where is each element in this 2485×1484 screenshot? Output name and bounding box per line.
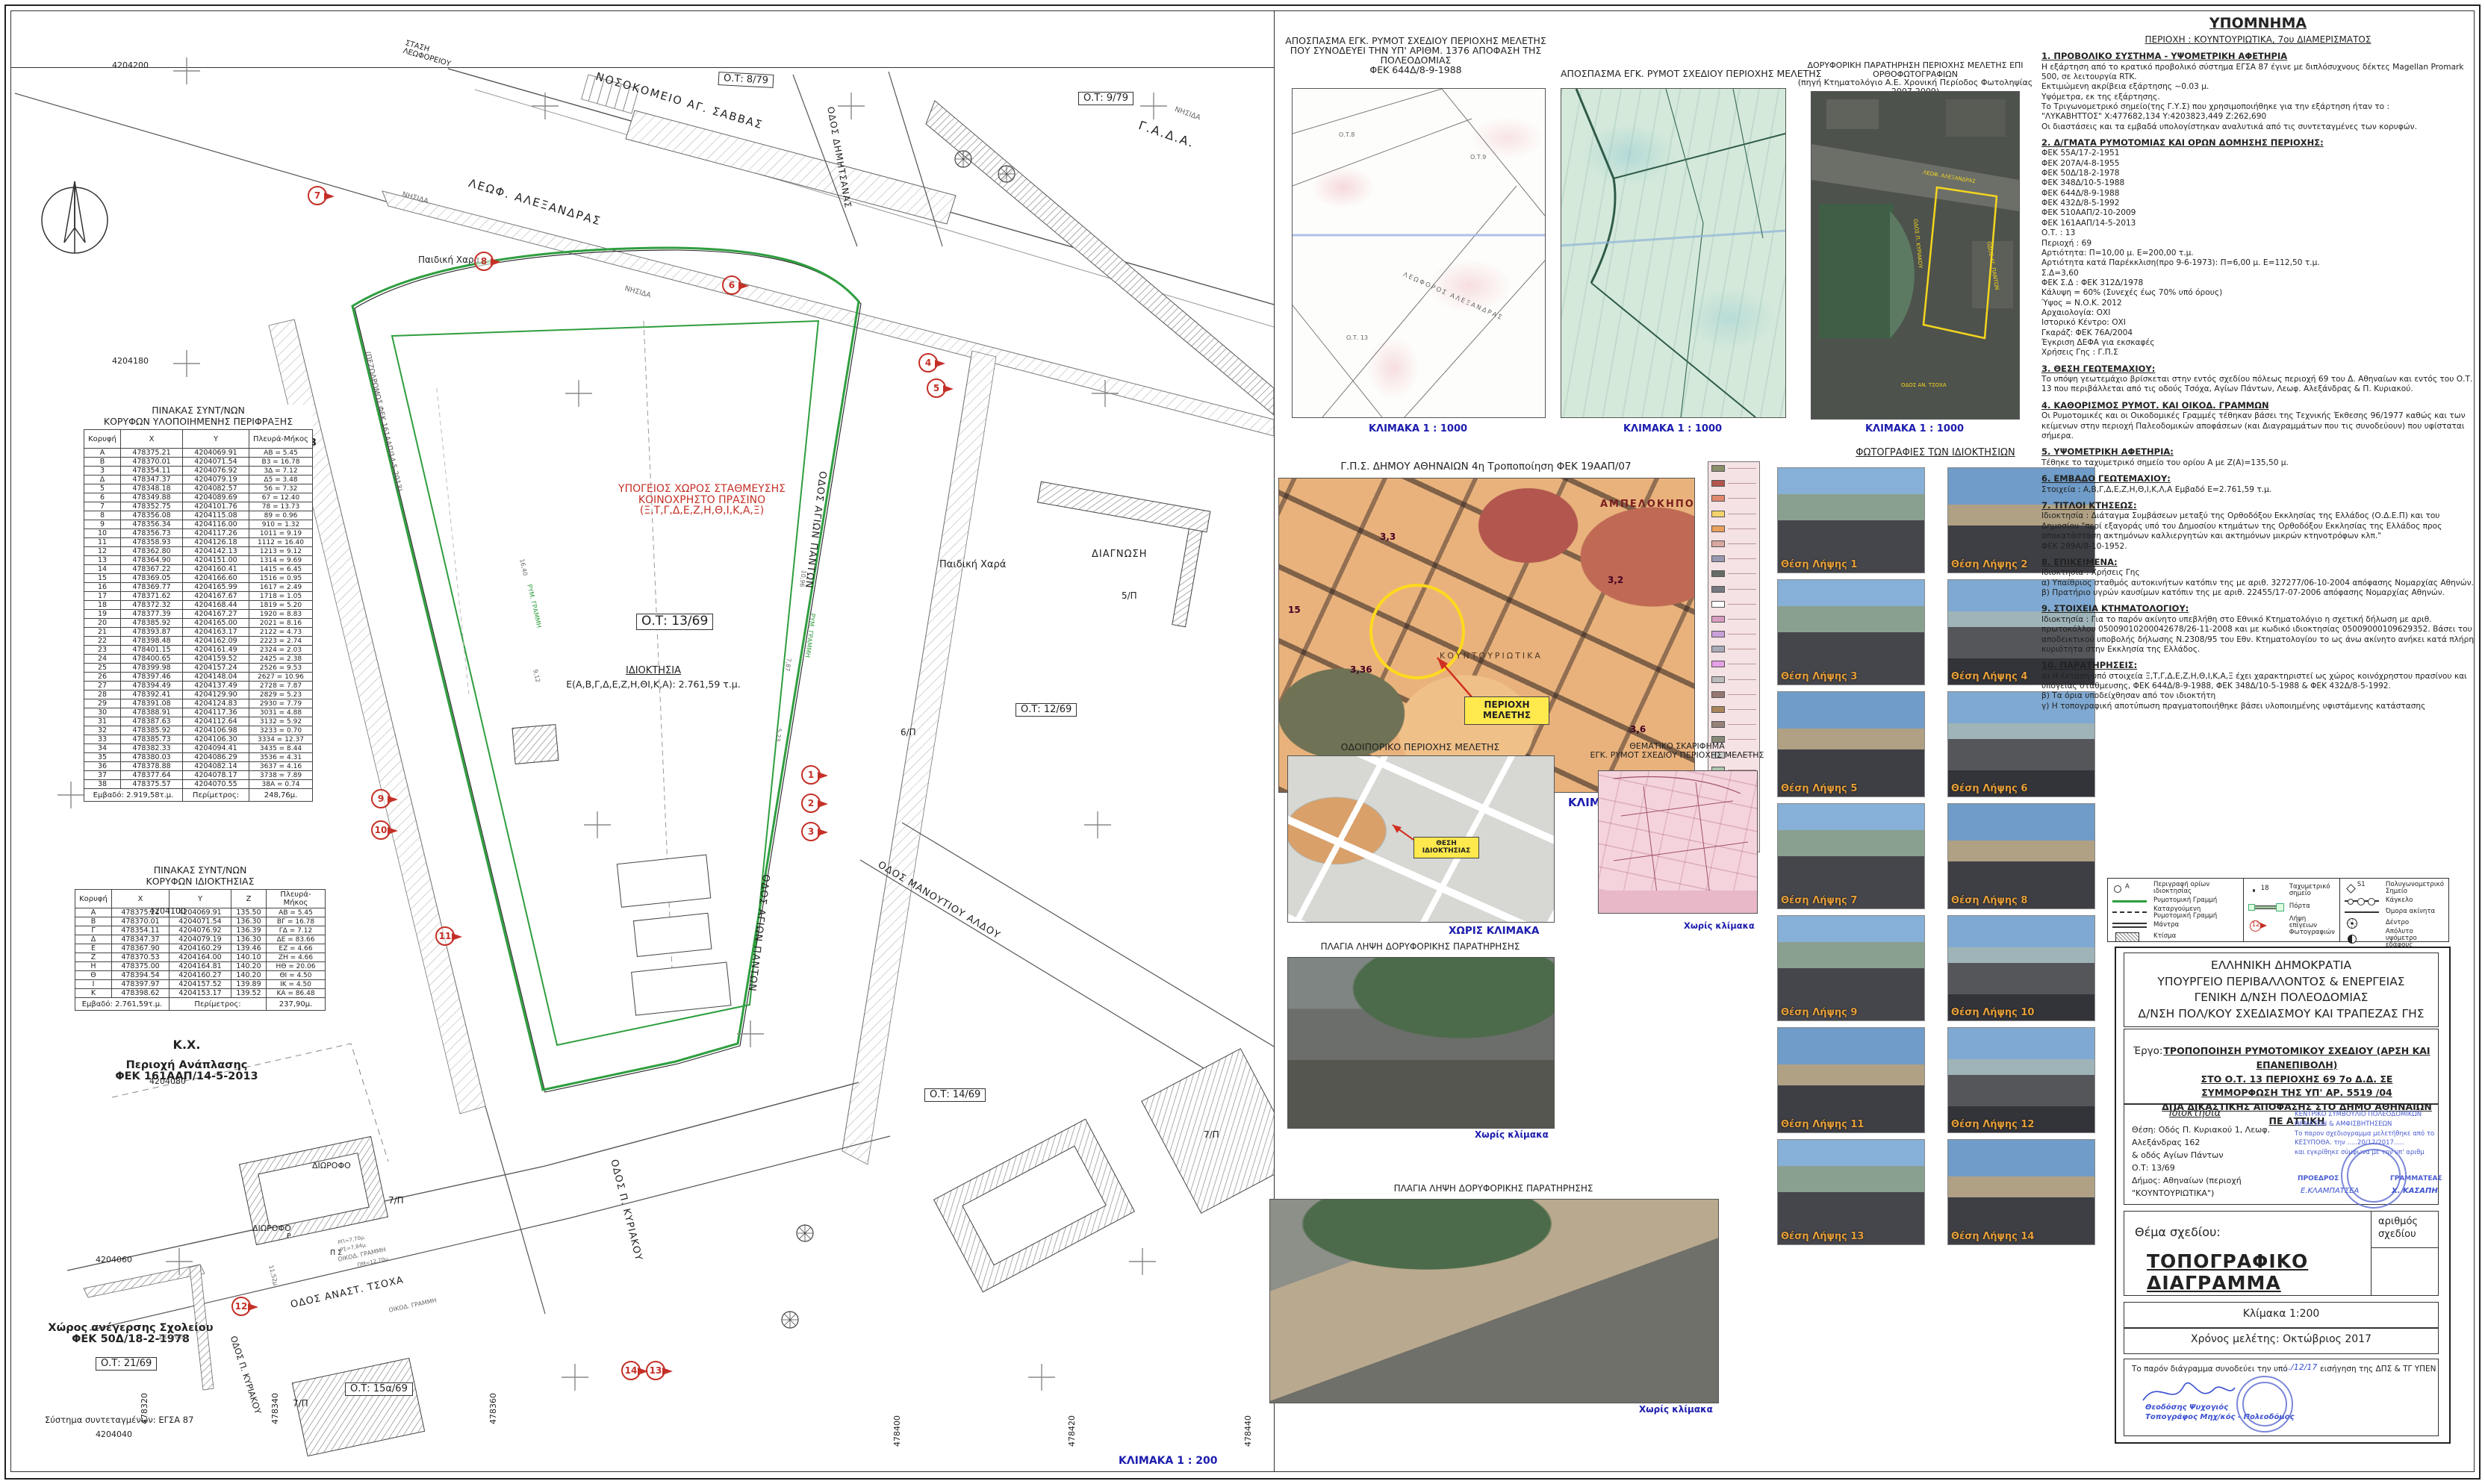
photo-caption: Θέση Λήψης 5 xyxy=(1781,783,1857,794)
excerpt2-title: ΑΠΟΣΠΑΣΜΑ ΕΓΚ. ΡΥΜΟΤ ΣΧΕΔΙΟΥ ΠΕΡΙΟΧΗΣ ΜΕ… xyxy=(1561,69,1785,78)
block-ot14-label: Ο.Τ: 14/69 xyxy=(924,1088,986,1102)
gps-study-area-tag: ΠΕΡΙΟΧΗ ΜΕΛΕΤΗΣ xyxy=(1464,696,1549,725)
table-row: Α478375.214204069.91135.50ΑΒ = 5.45 xyxy=(75,908,326,917)
floors-6p-label: 6/Π xyxy=(901,728,916,738)
property-photo: Θέση Λήψης 8 xyxy=(1947,803,2095,909)
playground-label-top: Παιδική Χαρά xyxy=(418,255,480,265)
table-row: 9478356.344204116.00910 = 1.32 xyxy=(84,520,313,529)
symbol-icon xyxy=(2345,933,2382,944)
excerpt1-title: ΑΠΟΣΠΑΣΜΑ ΕΓΚ. ΡΥΜΟΤ ΣΧΕΔΙΟΥ ΠΕΡΙΟΧΗΣ ΜΕ… xyxy=(1283,36,1549,75)
symbol-icon xyxy=(2248,901,2286,912)
legend-section: 9. ΣΤΟΙΧΕΙΑ ΚΤΗΜΑΤΟΛΟΓΙΟΥ: Ιδιοκτησία : … xyxy=(2041,603,2475,655)
table-row: 23478401.154204161.492324 = 2.03 xyxy=(84,646,313,655)
plagia2-caption: Χωρίς κλίμακα xyxy=(1639,1405,1713,1415)
symbol-row: Μάντρα xyxy=(2112,920,2239,931)
table-row: 7478352.754204101.7678 = 13.73 xyxy=(84,502,313,511)
study-time-box: Χρόνος μελέτης: Οκτώβριος 2017 xyxy=(2124,1327,2439,1354)
plan-scale-label: ΚΛΙΜΑΚΑ 1 : 200 xyxy=(1119,1456,1218,1467)
block-ot8-label: Ο.Τ: 8/79 xyxy=(718,72,774,87)
symbol-row: AΠεριγραφή ορίων ιδιοκτησίας xyxy=(2112,882,2239,895)
gps-legend-row xyxy=(1711,526,1756,531)
grid-x-478360: 478360 xyxy=(489,1393,498,1424)
gps-area-label: ΑΜΠΕΛΟΚΗΠΟΙ xyxy=(1600,499,1695,510)
table-row: 8478356.084204115.0889 = 0.96 xyxy=(84,511,313,520)
symbol-icon xyxy=(2112,908,2150,919)
sxoleia-label: ΣΧΟΛΕΙΑ xyxy=(158,1335,188,1341)
diorofo-label-2: ΔΙΩΡΟΦΟ xyxy=(252,1224,291,1233)
plagia1-caption: Χωρίς κλίμακα xyxy=(1475,1130,1549,1140)
photo-caption: Θέση Λήψης 14 xyxy=(1951,1231,2034,1242)
table-row: 34478382.334204094.413435 = 8.44 xyxy=(84,744,313,753)
playground-label-right: Παιδική Χαρά xyxy=(939,560,1006,570)
proedros-label: ΠΡΟΕΔΡΟΣ xyxy=(2298,1176,2339,1182)
property-photo: Θέση Λήψης 1 xyxy=(1777,467,1925,573)
excerpt2-caption: ΚΛΙΜΑΚΑ 1 : 1000 xyxy=(1561,424,1785,434)
grid-y-4204200: 4204200 xyxy=(112,61,149,70)
legend-section: 6. ΕΜΒΑΔΟ ΓΕΩΤΕΜΑΧΙΟΥ: Στοιχεία : Α,Β,Γ,… xyxy=(2041,473,2475,495)
symbol-row: 18Ταχυμετρικό σημείο xyxy=(2248,884,2335,897)
gps-zone-336: 3,36 xyxy=(1350,665,1372,675)
block-ot13-label: Ο.Τ: 13/69 xyxy=(636,614,713,630)
owner-label: Ιδιοκτησία xyxy=(2169,1109,2221,1119)
scale-value: Κλίμακα 1:200 xyxy=(2124,1308,2438,1320)
table-row: 15478369.054204166.601516 = 0.95 xyxy=(84,574,313,583)
photo-caption: Θέση Λήψης 1 xyxy=(1781,559,1857,570)
gps-legend-row xyxy=(1711,646,1756,652)
legend-title: ΥΠΟΜΝΗΜΑ xyxy=(2041,15,2475,33)
gps-legend-row xyxy=(1711,722,1756,727)
table-row: 19478377.394204167.271920 = 8.83 xyxy=(84,610,313,619)
odoiporiko-map: ΘΕΣΗ ΙΔΙΟΚΤΗΣΙΑΣ xyxy=(1287,755,1555,923)
grid-y-4204100: 4204100 xyxy=(149,907,186,916)
property-photo: Θέση Λήψης 7 xyxy=(1777,803,1925,909)
table-row: 35478380.034204086.293536 = 4.31 xyxy=(84,753,313,762)
symbol-icon xyxy=(2112,931,2150,942)
table-row: 30478388.914204117.363031 = 4.88 xyxy=(84,708,313,717)
table-row: 27478394.494204137.492728 = 7.87 xyxy=(84,682,313,690)
thematiko-map xyxy=(1598,770,1758,914)
legend-section: 4. ΚΑΘΟΡΙΣΜΟΣ ΡΥΜΟΤ. ΚΑΙ ΟΙΚΟΔ. ΓΡΑΜΜΩΝ … xyxy=(2041,400,2475,442)
kx-label-bottom: Κ.Χ. xyxy=(131,1039,243,1052)
block-ot9-label: Ο.Τ: 9/79 xyxy=(1078,92,1133,105)
gps-legend-row xyxy=(1711,617,1756,622)
table-row: 12478362.804204142.131213 = 9.12 xyxy=(84,547,313,556)
table-row: Ζ478370.534204164.00140.10ΖΗ = 4.66 xyxy=(75,953,326,962)
north-arrow xyxy=(42,181,108,253)
diorofo-label-1: ΔΙΩΡΟΦΟ xyxy=(312,1162,351,1170)
gps-zone-33: 3,3 xyxy=(1380,532,1396,542)
excerpt1-map: Ο.Τ.8 Ο.Τ.9 Ο.Τ. 13 ΛΕΩΦΟΡΟΣ ΑΛΕΞΑΝΔΡΑΣ xyxy=(1292,88,1546,418)
dim-s5: 5,23 xyxy=(774,728,782,742)
symbol-row: 12Λήψη επίγειων Φωτογραφιών xyxy=(2248,916,2335,936)
legend-section: 5. ΥΨΟΜΕΤΡΙΚΗ ΑΦΕΤΗΡΙΑ: Τέθηκε το ταχυμε… xyxy=(2041,446,2475,468)
scale-box: Κλίμακα 1:200 xyxy=(2124,1302,2439,1329)
legend-section: 1. ΠΡΟΒΟΛΙΚΟ ΣΥΣΤΗΜΑ - ΥΨΟΜΕΤΡΙΚΗ ΑΦΕΤΗΡ… xyxy=(2041,51,2475,132)
table-row: 28478392.414204129.902829 = 5.23 xyxy=(84,690,313,699)
gps-zone-32: 3,2 xyxy=(1608,576,1623,585)
grid-y-4204060: 4204060 xyxy=(96,1256,132,1265)
property-photo: Θέση Λήψης 13 xyxy=(1777,1139,1925,1245)
table-row: 24478400.654204159.522425 = 2.38 xyxy=(84,655,313,664)
symbol-icon: A xyxy=(2112,883,2150,894)
legend-section: 7. ΤΙΤΛΟΙ ΚΤΗΣΕΩΣ: Ιδιοκτησία : Διάταγμα… xyxy=(2041,500,2475,552)
plagia1-photo xyxy=(1287,957,1555,1129)
gps-legend-row xyxy=(1711,602,1756,607)
ortho-map: ΛΕΩΦ. ΑΛΕΞΑΝΔΡΑΣ ΟΔΟΣ Π. ΚΥΡΙΑΚΟΥ ΟΔΟΣ Α… xyxy=(1811,91,2020,420)
floors-5p-label: 5/Π xyxy=(1122,591,1137,601)
symbol-row: Όμορα ακίνητα xyxy=(2345,906,2444,917)
gps-legend-row xyxy=(1711,661,1756,667)
legend-subtitle: ΠΕΡΙΟΧΗ : ΚΟΥΝΤΟΥΡΙΩΤΙΚΑ, 7ου ΔΙΑΜΕΡΙΣΜΑ… xyxy=(2041,34,2475,46)
property-table-title: ΠΙΝΑΚΑΣ ΣΥΝΤ/ΝΩΝ ΚΟΡΥΦΩΝ ΙΔΙΟΚΤΗΣΙΑΣ xyxy=(75,864,326,887)
gps-title: Γ.Π.Σ. ΔΗΜΟΥ ΑΘΗΝΑΙΩΝ 4η Τροποποίηση ΦΕΚ… xyxy=(1278,461,1694,472)
legend-section: 2. Δ/ΓΜΑΤΑ ΡΥΜΟΤΟΜΙΑΣ ΚΑΙ ΟΡΩΝ ΔΟΜΗΣΗΣ Π… xyxy=(2041,137,2475,358)
excerpt2-map xyxy=(1561,88,1786,418)
table-row: Δ478347.374204079.19Δ5 = 3.48 xyxy=(84,476,313,484)
owner-box: Ιδιοκτησία Θέση: Οδός Π. Κυριακού 1, Λεω… xyxy=(2124,1103,2439,1205)
gps-legend-row xyxy=(1711,571,1756,576)
photo-caption: Θέση Λήψης 6 xyxy=(1951,783,2027,794)
table-row: Γ478354.114204076.92136.39ΓΔ = 7.12 xyxy=(75,926,326,935)
photo-caption: Θέση Λήψης 2 xyxy=(1951,559,2027,570)
table-row: 5478348.184204082.5756 = 7.32 xyxy=(84,484,313,493)
dim-s3: 10,96 xyxy=(798,570,806,587)
gps-legend-row xyxy=(1711,496,1756,501)
table-row: Κ478398.624204153.17139.52ΚΑ = 86.48 xyxy=(75,989,326,998)
anaplasi-label-bottom: Περιοχή Ανάπλασης ΦΕΚ 161ΑΑΠ/14-5-2013 xyxy=(86,1060,287,1082)
property-photo: Θέση Λήψης 10 xyxy=(1947,915,2095,1021)
coord-system-note: Σύστημα συντεταγμένων: ΕΓΣΑ 87 xyxy=(45,1415,193,1424)
photo-caption: Θέση Λήψης 7 xyxy=(1781,895,1857,906)
table-row: 10478356.734204117.261011 = 9.19 xyxy=(84,529,313,538)
table-row: Θ478394.544204160.27140.20ΘΙ = 4.50 xyxy=(75,971,326,980)
symbol-row: Ρυμοτομική Γραμμή xyxy=(2112,895,2239,906)
grid-x-478400: 478400 xyxy=(893,1415,902,1447)
gps-legend-row xyxy=(1711,677,1756,682)
block-ot12-label: Ο.Τ: 12/69 xyxy=(1016,703,1077,717)
agency-name: ΕΛΛΗΝΙΚΗ ΔΗΜΟΚΡΑΤΙΑ ΥΠΟΥΡΓΕΙΟ ΠΕΡΙΒΑΛΛΟΝ… xyxy=(2124,958,2438,1023)
photo-caption: Θέση Λήψης 8 xyxy=(1951,895,2027,906)
table-row: 38478375.574204070.5538A = 0.74 xyxy=(84,780,313,789)
grid-y-4204040: 4204040 xyxy=(96,1430,132,1439)
table-row: Ε478367.904204160.29139.46ΕΖ = 4.66 xyxy=(75,944,326,953)
table-row: 13478364.904204151.001314 = 9.69 xyxy=(84,556,313,565)
table-row: 33478385.734204106.303334 = 12.37 xyxy=(84,735,313,744)
symbol-icon: 18 xyxy=(2248,885,2286,896)
property-photo: Θέση Λήψης 14 xyxy=(1947,1139,2095,1245)
table-row: A478375.214204069.91AB = 5.45 xyxy=(84,449,313,458)
property-photo: Θέση Λήψης 3 xyxy=(1777,579,1925,685)
excerpt1-ot8: Ο.Τ.8 xyxy=(1339,132,1355,138)
table-row: Ι478397.974204157.52139.89ΙΚ = 4.50 xyxy=(75,980,326,989)
floors-7p-label-1: 7/Π xyxy=(388,1196,404,1206)
gps-legend-row xyxy=(1711,632,1756,637)
official-stamp-inner xyxy=(2347,1149,2401,1203)
symbol-row: Δέντρο xyxy=(2345,917,2444,929)
symbol-row: Κάγκελο xyxy=(2345,895,2444,906)
legend-panel: ΥΠΟΜΝΗΜΑ ΠΕΡΙΟΧΗ : ΚΟΥΝΤΟΥΡΙΩΤΙΚΑ, 7ου Δ… xyxy=(2041,15,2475,711)
legend-section: 8. ΕΠΙΚΕΙΜΕΝΑ: Ιδιοκτησία : Χρήσεις Γης … xyxy=(2041,557,2475,599)
table-row: 21478393.874204163.172122 = 4.73 xyxy=(84,628,313,637)
table-row: 11478358.934204126.181112 = 16.40 xyxy=(84,538,313,547)
drawing-number-label: αριθμός σχεδίου xyxy=(2378,1216,2418,1241)
project-box: Έργο: ΤΡΟΠΟΠΟΙΗΣΗ ΡΥΜΟΤΟΜΙΚΟΥ ΣΧΕΔΙΟΥ (Α… xyxy=(2124,1029,2439,1105)
subject-label: Θέμα σχεδίου: xyxy=(2135,1226,2221,1239)
legend-section: 10. ΠΑΡΑΤΗΡΗΣΕΙΣ: α) Η έκταση υπό στοιχε… xyxy=(2041,660,2475,711)
symbol-icon xyxy=(2345,906,2382,917)
table-row: 17478371.624204167.671718 = 1.05 xyxy=(84,592,313,601)
table-row: 26478397.464204148.042627 = 10.96 xyxy=(84,673,313,682)
property-photo: Θέση Λήψης 9 xyxy=(1777,915,1925,1021)
table-row: Η478375.004204164.81140.20ΗΘ = 20.06 xyxy=(75,962,326,971)
note-pre: Το παρόν διάγραμμα συνοδεύει την υπό xyxy=(2132,1365,2288,1374)
symbol-icon xyxy=(2112,920,2150,931)
gps-legend-row xyxy=(1711,707,1756,712)
table-row: 37478377.644204078.173738 = 7.89 xyxy=(84,771,313,780)
table-row: 36478378.884204082.143637 = 4.16 xyxy=(84,762,313,771)
symbol-row: Κτίσμα xyxy=(2112,931,2239,942)
table-row: 6478349.884204089.6967 = 12.40 xyxy=(84,493,313,502)
photo-caption: Θέση Λήψης 11 xyxy=(1781,1119,1864,1130)
engineer-signature-scribble xyxy=(2139,1374,2236,1408)
symbol-row: Πόρτα xyxy=(2248,901,2335,912)
plagia2-photo xyxy=(1269,1199,1719,1403)
gps-legend-row xyxy=(1711,587,1756,592)
property-vertices-table: ΠΙΝΑΚΑΣ ΣΥΝΤ/ΝΩΝ ΚΟΡΥΦΩΝ ΙΔΙΟΚΤΗΣΙΑΣ Κορ… xyxy=(75,864,326,1011)
table-row: 32478385.924204106.983233 = 0.70 xyxy=(84,726,313,735)
excerpt1-ot9: Ο.Τ.9 xyxy=(1470,155,1486,160)
photo-caption: Θέση Λήψης 12 xyxy=(1951,1119,2034,1130)
grid-y-4204180: 4204180 xyxy=(112,357,149,366)
symbol-row: Καταργούμενη Ρυμοτομική Γραμμή xyxy=(2112,906,2239,920)
project-label: Έργο: xyxy=(2133,1046,2162,1056)
note-handwritten-date: …/12/17 xyxy=(2283,1363,2317,1372)
excerpt1-ot13: Ο.Τ. 13 xyxy=(1346,335,1368,341)
property-photo: Θέση Λήψης 11 xyxy=(1777,1027,1925,1133)
floors-7p-label-3: 7/Π xyxy=(1204,1130,1219,1140)
grid-x-478420: 478420 xyxy=(1068,1415,1077,1447)
dim-s4: 7,87 xyxy=(784,658,791,672)
odoiporiko-caption: ΧΩΡΙΣ ΚΛΙΜΑΚΑ xyxy=(1449,926,1539,936)
table-row: 18478372.324204168.441819 = 5.20 xyxy=(84,601,313,610)
ortho-caption: ΚΛΙΜΑΚΑ 1 : 1000 xyxy=(1811,424,2018,434)
gps-legend-row xyxy=(1711,481,1756,486)
legend-section: 3. ΘΕΣΗ ΓΕΩΤΕΜΑΧΙΟΥ: Το υπόψη γεωτεμάχιο… xyxy=(2041,364,2475,395)
gps-kountouriotika-label: ΚΟΥΝΤΟΥΡΙΩΤΙΚΑ xyxy=(1440,652,1543,661)
symbol-icon xyxy=(2112,895,2150,906)
table-row: 29478391.084204124.832930 = 7.79 xyxy=(84,699,313,708)
excerpt1-caption: ΚΛΙΜΑΚΑ 1 : 1000 xyxy=(1292,424,1544,434)
drawing-title: ΤΟΠΟΓΡΑΦΙΚΟ ΔΙΑΓΡΑΜΜΑ xyxy=(2147,1250,2438,1294)
grid-x-478440: 478440 xyxy=(1244,1415,1253,1447)
table-row: 16478369.774204165.991617 = 2.49 xyxy=(84,583,313,592)
table-row: B478370.014204071.54B3 = 16.78 xyxy=(84,458,313,467)
fence-vertices-table: ΠΙΝΑΚΑΣ ΣΥΝΤ/ΝΩΝ ΚΟΡΥΦΩΝ ΥΛΟΠΟΙΗΜΕΝΗΣ ΠΕ… xyxy=(84,405,313,802)
table-row: 25478399.984204157.242526 = 9.53 xyxy=(84,664,313,673)
fence-table-title: ΠΙΝΑΚΑΣ ΣΥΝΤ/ΝΩΝ ΚΟΡΥΦΩΝ ΥΛΟΠΟΙΗΜΕΝΗΣ ΠΕ… xyxy=(84,405,313,427)
property-area-value: Ε(Α,Β,Γ,Δ,Ε,Ζ,Η,ΘΙ,Κ,Α): 2.761,59 τ.μ. xyxy=(545,679,762,689)
property-photo: Θέση Λήψης 12 xyxy=(1947,1027,2095,1133)
photo-caption: Θέση Λήψης 9 xyxy=(1781,1007,1857,1018)
gps-zone-15: 15 xyxy=(1288,605,1301,615)
subject-box: Θέμα σχεδίου: ΤΟΠΟΓΡΑΦΙΚΟ ΔΙΑΓΡΑΜΜΑ αριθ… xyxy=(2124,1211,2439,1296)
symbol-row: S1Πολυγωνομετρικό Σημείο xyxy=(2345,882,2444,895)
owner-details: Θέση: Οδός Π. Κυριακού 1, Λεωφ. Αλεξάνδρ… xyxy=(2132,1123,2292,1200)
gps-zone-36: 3,6 xyxy=(1630,725,1646,735)
grid-x-478340: 478340 xyxy=(271,1393,280,1424)
vertex-rho: Ρ xyxy=(287,1233,291,1241)
property-photo: Θέση Λήψης 5 xyxy=(1777,691,1925,797)
table-footer-row: Εμβαδό: 2.761,59τ.μ. Περίμετρος: 237,90μ… xyxy=(75,998,326,1011)
block-ot15a-label: Ο.Τ: 15α/69 xyxy=(345,1382,413,1396)
symbols-legend: AΠεριγραφή ορίων ιδιοκτησίαςΡυμοτομική Γ… xyxy=(2107,878,2449,942)
grid-y-4204080: 4204080 xyxy=(149,1077,186,1086)
note-post: εισήγηση της ΔΠΣ & ΤΓ ΥΠΕΝ xyxy=(2320,1365,2436,1374)
symbol-icon: S1 xyxy=(2345,883,2382,894)
table-row: 14478367.224204160.411415 = 6.45 xyxy=(84,565,313,574)
table-row: 3478354.114204076.923Δ = 7.12 xyxy=(84,467,313,476)
thematiko-title: ΘΕΜΑΤΙΚΟ ΣΚΑΡΙΦΗΜΑ ΕΓΚ. ΡΥΜΟΤ ΣΧΕΔΙΟΥ ΠΕ… xyxy=(1589,742,1765,759)
photo-caption: Θέση Λήψης 4 xyxy=(1951,671,2027,682)
table-row: 20478385.924204165.002021 = 8.16 xyxy=(84,619,313,628)
photo-caption: Θέση Λήψης 13 xyxy=(1781,1231,1864,1242)
ortho-street-4: ΟΔΟΣ ΑΝ. ΤΣΟΧΑ xyxy=(1901,383,1947,388)
plagia2-title: ΠΛΑΓΙΑ ΛΗΨΗ ΔΟΡΥΦΟΡΙΚΗΣ ΠΑΡΑΤΗΡΗΣΗΣ xyxy=(1269,1184,1717,1194)
symbol-icon: 12 xyxy=(2248,920,2286,932)
gps-legend-row xyxy=(1711,511,1756,517)
table-header-row: Κορυφή X Y Πλευρά-Μήκος xyxy=(84,430,313,449)
agency-box: ΕΛΛΗΝΙΚΗ ΔΗΜΟΚΡΑΤΙΑ ΥΠΟΥΡΓΕΙΟ ΠΕΡΙΒΑΛΛΟΝ… xyxy=(2124,953,2439,1027)
study-time-value: Χρόνος μελέτης: Οκτώβριος 2017 xyxy=(2124,1333,2438,1345)
table-header-row: Κορυφή X Y Z Πλευρά-Μήκος xyxy=(75,890,326,908)
table-row: Β478370.014204071.54136.30ΒΓ = 16.78 xyxy=(75,917,326,926)
property-title: ΙΔΙΟΚΤΗΣΙΑ xyxy=(597,666,709,676)
note-box: Το παρόν διάγραμμα συνοδεύει την υπό …/1… xyxy=(2124,1359,2439,1436)
diagnosi-label: ΔΙΑΓΝΩΣΗ xyxy=(1092,549,1148,560)
gps-legend-row xyxy=(1711,541,1756,546)
table-row: 22478398.484204162.092223 = 2.74 xyxy=(84,637,313,646)
engineer-stamp-inner xyxy=(2242,1382,2287,1427)
school-site-label: Χώρος ανέγερσης Σχολείου ΦΕΚ 50Δ/18-2-19… xyxy=(45,1323,217,1345)
table-row: Δ478347.374204079.19136.30ΔΕ = 83.66 xyxy=(75,935,326,944)
table-row: 31478387.634204112.643132 = 5.92 xyxy=(84,717,313,726)
thematiko-caption: Χωρίς κλίμακα xyxy=(1684,921,1755,930)
gps-legend-row xyxy=(1711,692,1756,697)
floors-7p-label-2: 7/Π xyxy=(293,1399,308,1409)
odoiporiko-title: ΟΔΟΙΠΟΡΙΚΟ ΠΕΡΙΟΧΗΣ ΜΕΛΕΤΗΣ xyxy=(1287,742,1553,752)
gps-legend-row xyxy=(1711,466,1756,471)
gps-legend-row xyxy=(1711,556,1756,561)
symbol-icon xyxy=(2345,917,2382,929)
block-ot21-label: Ο.Τ: 21/69 xyxy=(96,1357,157,1371)
symbol-icon xyxy=(2345,895,2382,906)
photo-caption: Θέση Λήψης 10 xyxy=(1951,1007,2034,1018)
plagia1-title: ΠΛΑΓΙΑ ΛΗΨΗ ΔΟΡΥΦΟΡΙΚΗΣ ΠΑΡΑΤΗΡΗΣΗΣ xyxy=(1287,942,1553,952)
table-footer-row: Εμβαδό: 2.919,58τ.μ. Περίμετρος: 248,76μ… xyxy=(84,789,313,802)
topographic-diagram-sheet: { "plan": { "scale_label": "ΚΛΙΜΑΚΑ 1 : … xyxy=(0,0,2485,1484)
underground-parking-label: ΥΠΟΓΕΙΟΣ ΧΩΡΟΣ ΣΤΑΘΜΕΥΣΗΣ ΚΟΙΝΟΧΡΗΣΤΟ ΠΡ… xyxy=(590,484,814,517)
photo-caption: Θέση Λήψης 3 xyxy=(1781,671,1857,682)
